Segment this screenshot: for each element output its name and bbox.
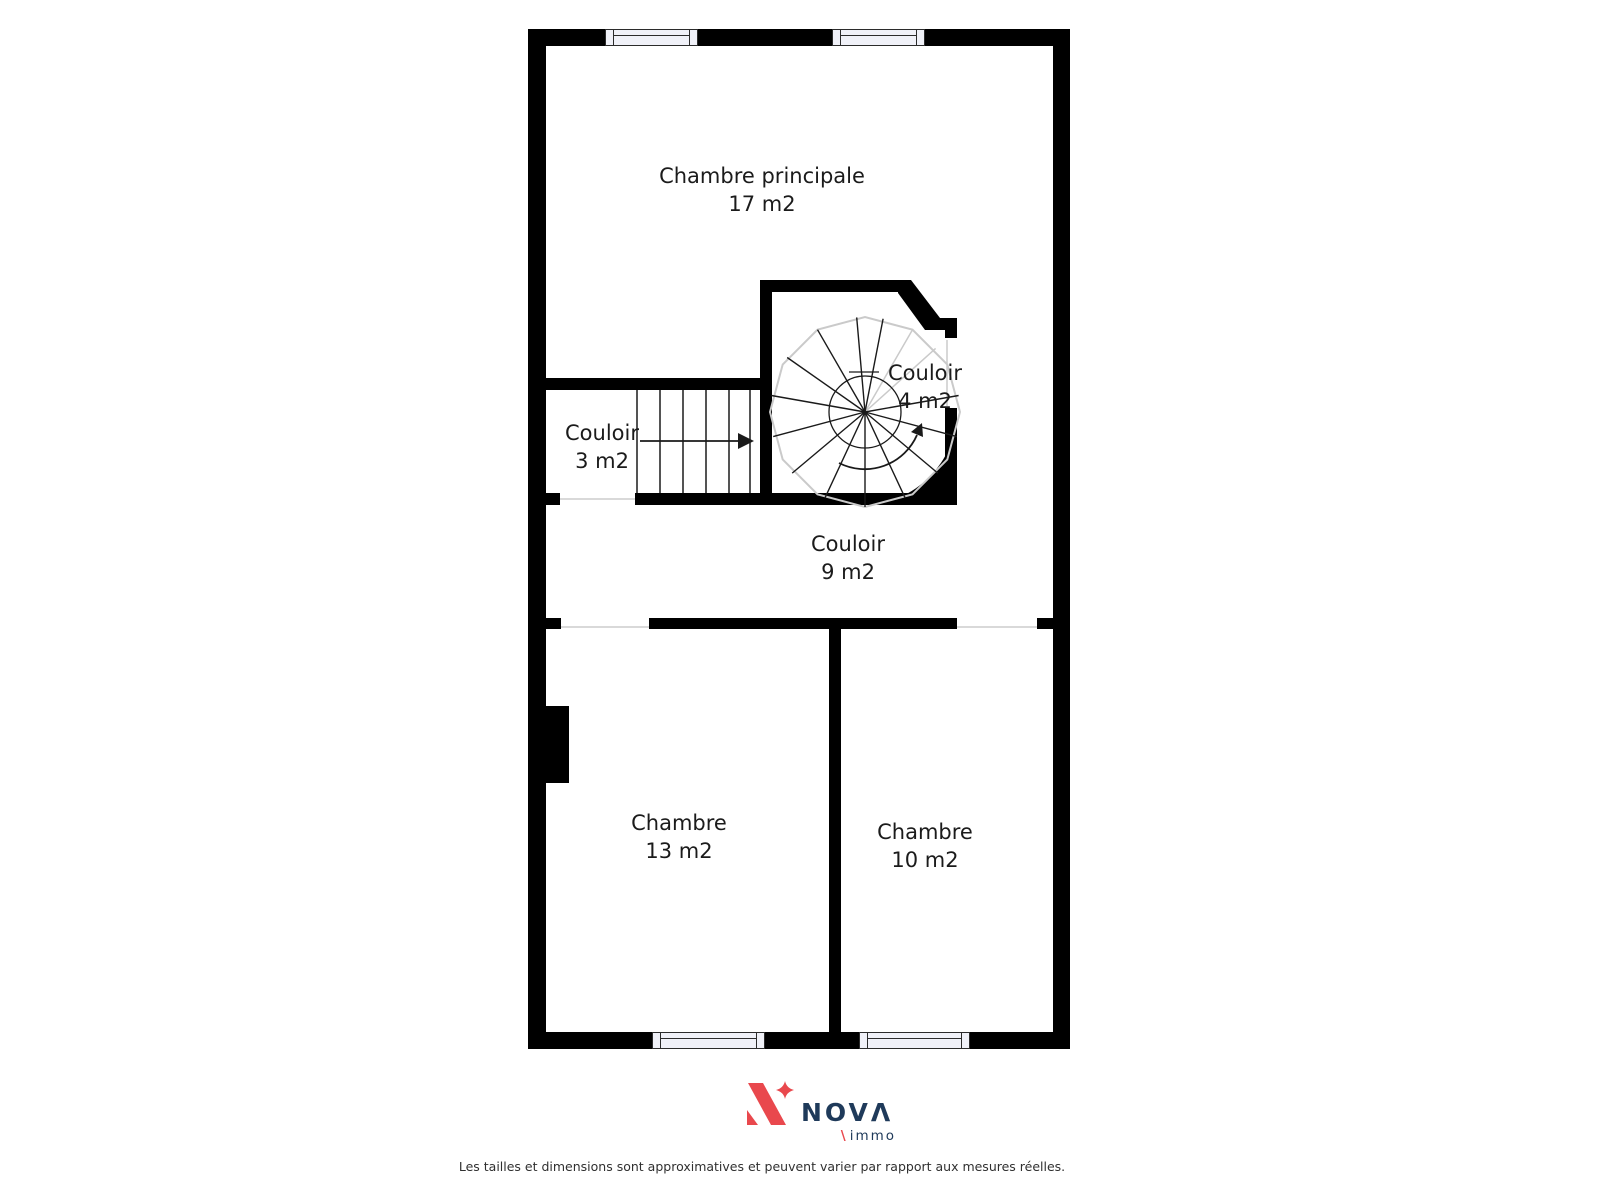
room-area: 3 m2 (565, 447, 639, 475)
wall-corner-infill (865, 412, 957, 505)
sparkle-icon (776, 1081, 794, 1099)
room-label-chambre-principale: Chambre principale 17 m2 (659, 162, 865, 218)
room-label-couloir-3: Couloir 3 m2 (565, 419, 639, 475)
room-label-chambre-10: Chambre 10 m2 (877, 818, 973, 874)
brand-subtitle: \immo (760, 1128, 896, 1144)
room-name: Couloir (888, 359, 962, 387)
room-label-chambre-13: Chambre 13 m2 (631, 809, 727, 865)
disclaimer-text: Les tailles et dimensions sont approxima… (459, 1159, 1065, 1174)
room-area: 10 m2 (877, 846, 973, 874)
room-name: Chambre principale (659, 162, 865, 190)
room-name: Couloir (565, 419, 639, 447)
brand-wordmark: NOVΛ (801, 1098, 893, 1127)
brand-slash-icon: \ (841, 1128, 848, 1144)
room-area: 17 m2 (659, 190, 865, 218)
room-name: Couloir (811, 530, 885, 558)
room-label-couloir-4: Couloir 4 m2 (888, 359, 962, 415)
brand-immo: immo (850, 1128, 896, 1144)
room-area: 13 m2 (631, 837, 727, 865)
room-name: Chambre (877, 818, 973, 846)
room-area: 4 m2 (888, 387, 962, 415)
room-area: 9 m2 (811, 558, 885, 586)
stair-direction-arrowhead (738, 433, 754, 449)
floorplan-page: Chambre principale 17 m2 Couloir 3 m2 Co… (0, 0, 1600, 1200)
room-label-couloir-9: Couloir 9 m2 (811, 530, 885, 586)
nova-logo-icon (744, 1077, 796, 1127)
brand-lambda: Λ (871, 1098, 893, 1127)
straight-staircase (637, 390, 754, 493)
wall-diagonal (898, 280, 940, 330)
room-name: Chambre (631, 809, 727, 837)
brand-nov: NOV (801, 1098, 871, 1127)
